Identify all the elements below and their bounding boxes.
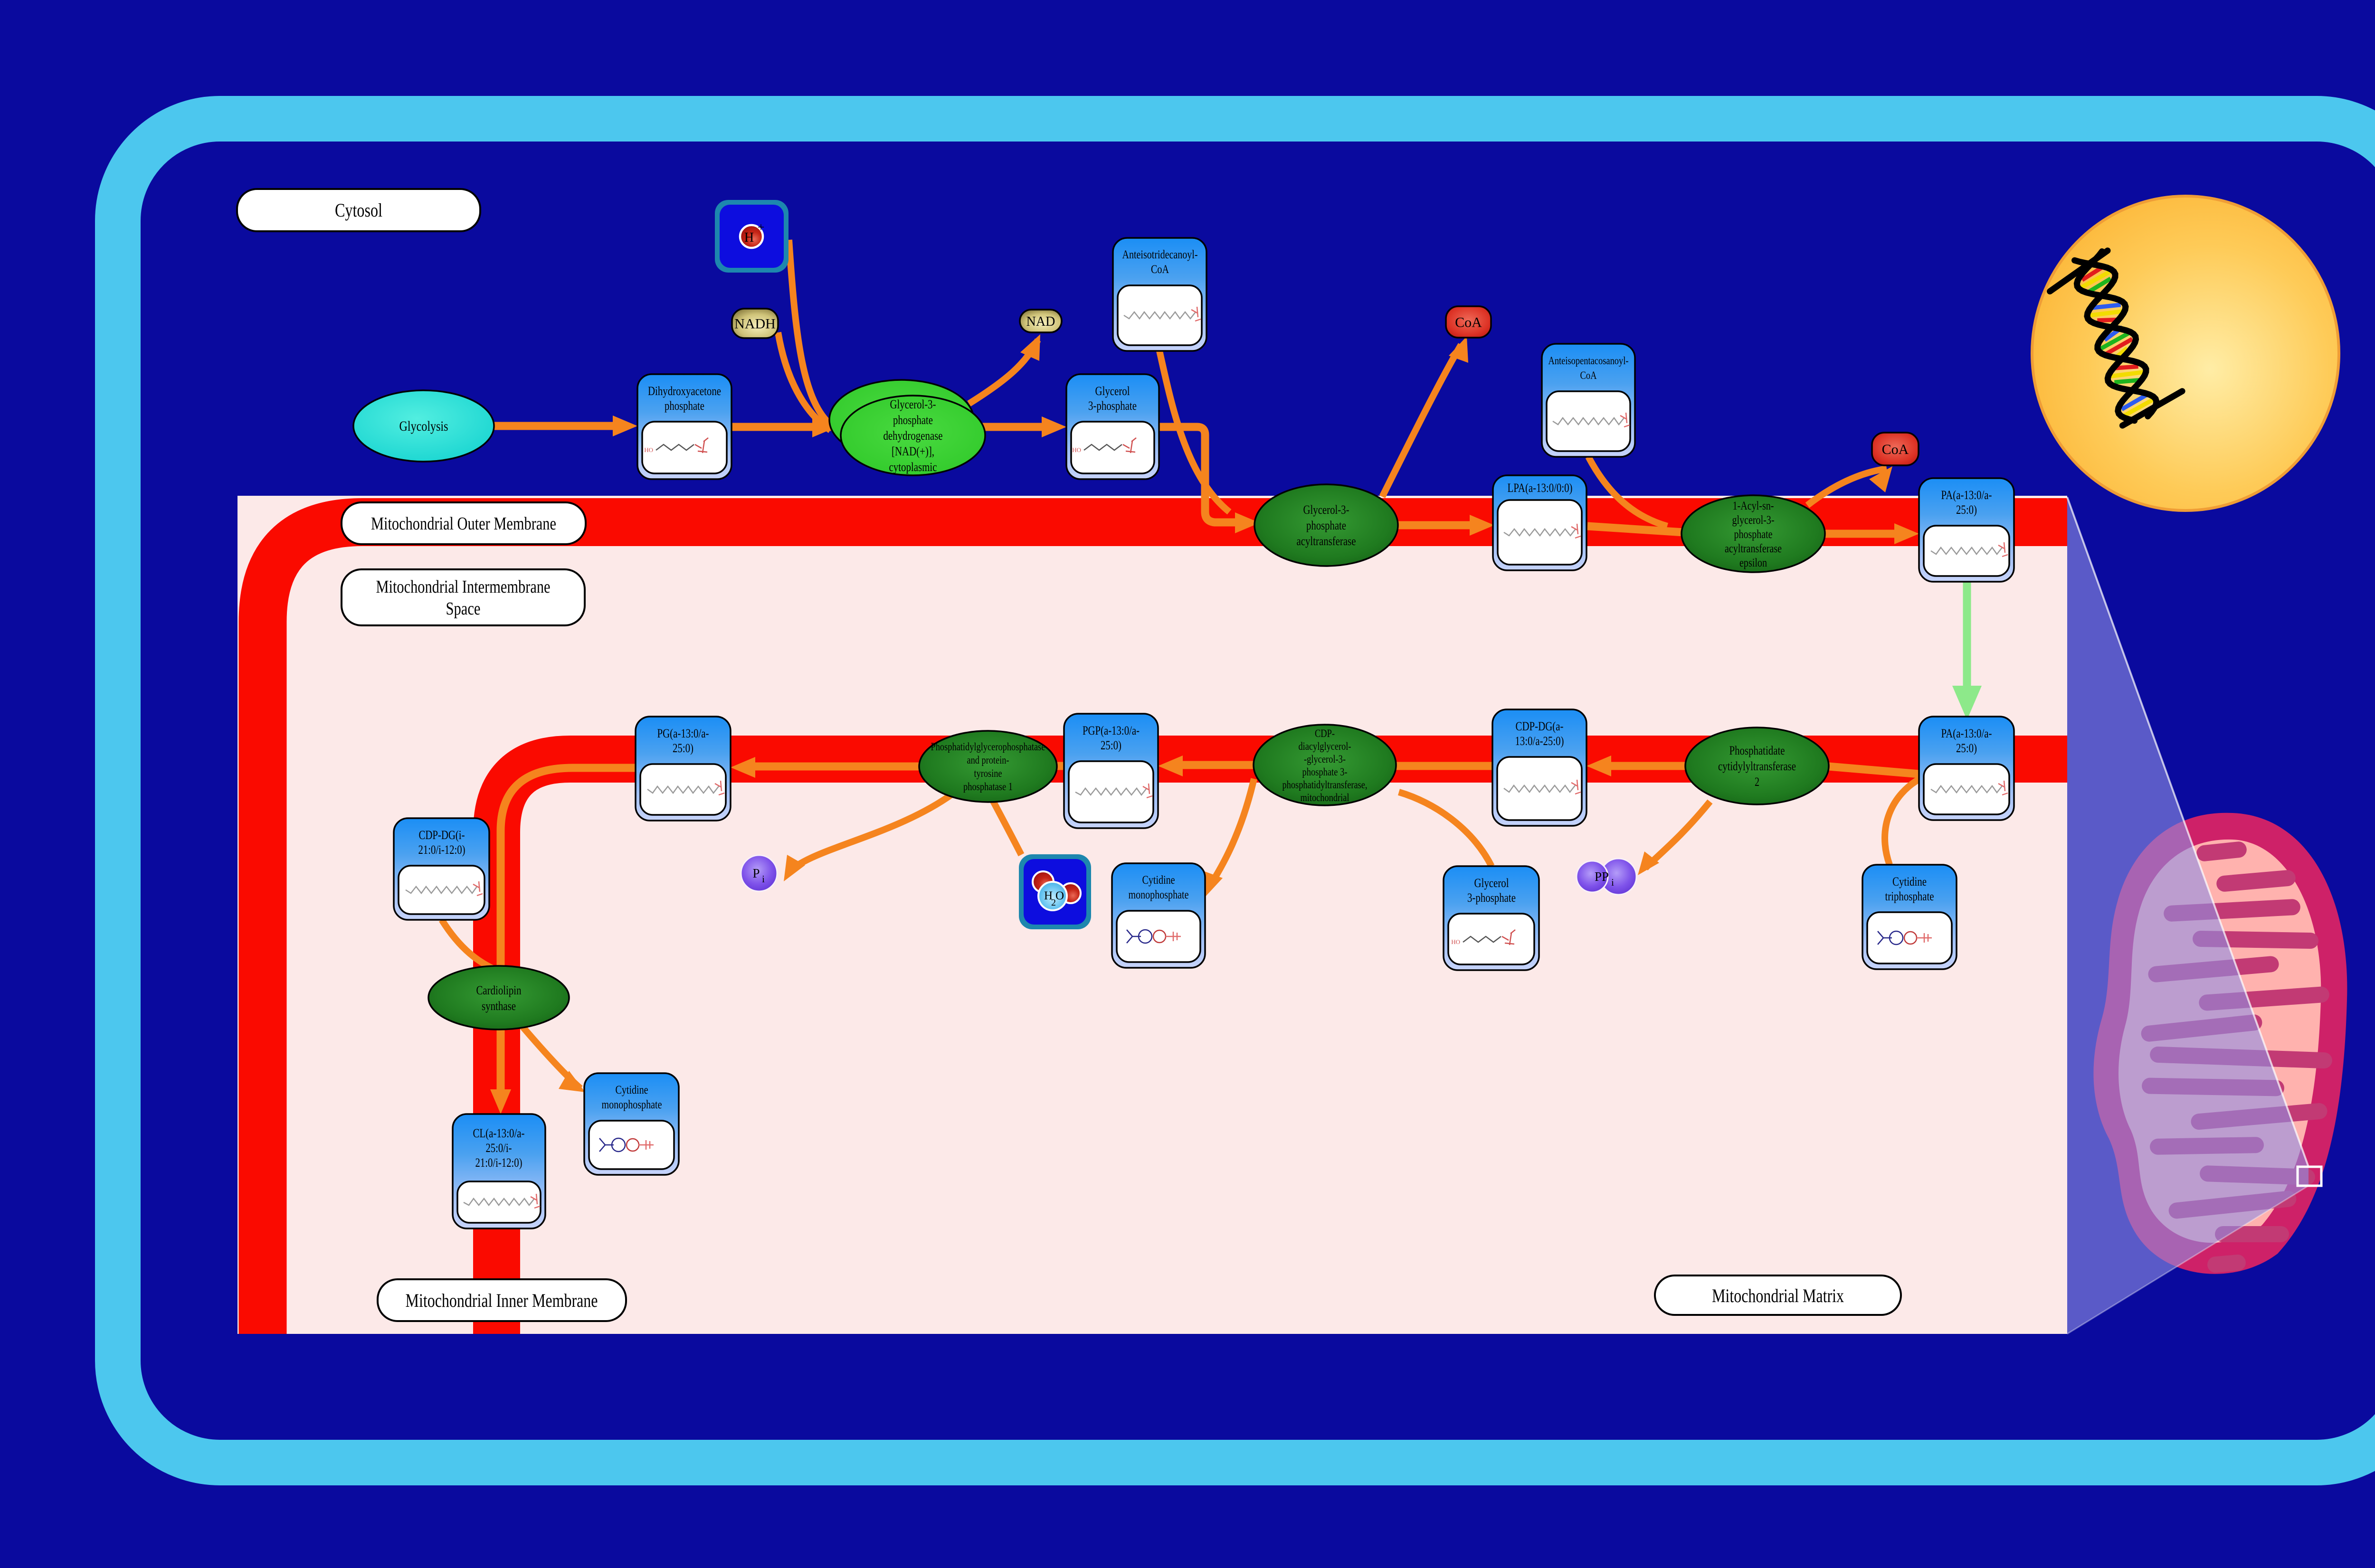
svg-text:phosphate 3-: phosphate 3- bbox=[1302, 766, 1348, 778]
svg-text:HO: HO bbox=[644, 446, 653, 453]
svg-text:25:0): 25:0) bbox=[1956, 741, 1977, 755]
svg-text:epsilon: epsilon bbox=[1739, 557, 1767, 569]
svg-text:Cytosol: Cytosol bbox=[335, 199, 382, 221]
svg-text:Dihydroxyacetone: Dihydroxyacetone bbox=[648, 384, 721, 398]
svg-text:phosphate: phosphate bbox=[665, 399, 704, 413]
svg-text:25:0/i-: 25:0/i- bbox=[486, 1141, 512, 1155]
svg-text:phosphate: phosphate bbox=[1306, 519, 1346, 532]
svg-text:Mitochondrial Outer Membrane: Mitochondrial Outer Membrane bbox=[371, 514, 556, 534]
svg-text:25:0): 25:0) bbox=[1101, 738, 1121, 752]
svg-text:+: + bbox=[758, 220, 765, 234]
svg-text:CL(a-13:0/a-: CL(a-13:0/a- bbox=[473, 1126, 525, 1140]
svg-text:dehydrogenase: dehydrogenase bbox=[883, 429, 943, 443]
svg-text:Cytidine: Cytidine bbox=[1892, 875, 1927, 888]
svg-text:2: 2 bbox=[1755, 775, 1759, 789]
svg-text:PP: PP bbox=[1595, 869, 1609, 884]
svg-text:O: O bbox=[1055, 889, 1064, 902]
svg-text:CoA: CoA bbox=[1580, 369, 1597, 381]
svg-text:HO: HO bbox=[1072, 446, 1081, 453]
svg-text:25:0): 25:0) bbox=[1956, 503, 1977, 517]
svg-text:acyltransferase: acyltransferase bbox=[1297, 534, 1356, 548]
svg-text:25:0): 25:0) bbox=[673, 741, 693, 755]
svg-text:3-phosphate: 3-phosphate bbox=[1467, 891, 1516, 905]
svg-text:and protein-: and protein- bbox=[967, 754, 1009, 766]
svg-text:13:0/a-25:0): 13:0/a-25:0) bbox=[1515, 734, 1564, 748]
svg-text:PG(a-13:0/a-: PG(a-13:0/a- bbox=[657, 727, 709, 740]
svg-text:21:0/i-12:0): 21:0/i-12:0) bbox=[475, 1156, 522, 1170]
svg-text:phosphatidyltransferase,: phosphatidyltransferase, bbox=[1282, 779, 1368, 791]
svg-text:P: P bbox=[752, 866, 760, 880]
svg-text:HO: HO bbox=[1451, 938, 1460, 945]
svg-text:Mitochondrial Matrix: Mitochondrial Matrix bbox=[1712, 1285, 1844, 1306]
svg-text:LPA(a-13:0/0:0): LPA(a-13:0/0:0) bbox=[1508, 481, 1573, 495]
svg-text:CDP-DG(i-: CDP-DG(i- bbox=[419, 828, 465, 842]
svg-text:Anteisotridecanoyl-: Anteisotridecanoyl- bbox=[1122, 248, 1198, 261]
svg-text:i: i bbox=[762, 873, 765, 885]
svg-text:acyltransferase: acyltransferase bbox=[1725, 542, 1782, 555]
svg-text:PA(a-13:0/a-: PA(a-13:0/a- bbox=[1941, 488, 1992, 502]
svg-text:mitochondrial: mitochondrial bbox=[1301, 792, 1349, 803]
svg-text:NADH: NADH bbox=[734, 316, 776, 332]
svg-text:Cytidine: Cytidine bbox=[616, 1084, 648, 1096]
svg-text:CDP-: CDP- bbox=[1315, 727, 1335, 739]
svg-text:3-phosphate: 3-phosphate bbox=[1088, 399, 1137, 413]
svg-text:-glycerol-3-: -glycerol-3- bbox=[1304, 753, 1346, 765]
svg-text:Phosphatidylglycerophosphatase: Phosphatidylglycerophosphatase bbox=[931, 741, 1045, 753]
svg-text:triphosphate: triphosphate bbox=[1885, 889, 1934, 903]
svg-text:CoA: CoA bbox=[1882, 442, 1909, 457]
svg-text:Cytidine: Cytidine bbox=[1142, 874, 1175, 887]
svg-text:Glycerol-3-: Glycerol-3- bbox=[1303, 503, 1349, 517]
svg-text:monophosphate: monophosphate bbox=[1129, 888, 1189, 901]
svg-text:Cardiolipin: Cardiolipin bbox=[476, 983, 522, 997]
svg-text:PGP(a-13:0/a-: PGP(a-13:0/a- bbox=[1083, 724, 1140, 737]
svg-text:21:0/i-12:0): 21:0/i-12:0) bbox=[418, 843, 465, 857]
svg-text:glycerol-3-: glycerol-3- bbox=[1732, 514, 1775, 527]
svg-text:Glycolysis: Glycolysis bbox=[399, 418, 448, 434]
svg-text:diacylglycerol-: diacylglycerol- bbox=[1299, 740, 1351, 752]
svg-text:phosphate: phosphate bbox=[1734, 528, 1773, 541]
svg-text:[NAD(+)],: [NAD(+)], bbox=[892, 444, 934, 458]
svg-text:Space: Space bbox=[446, 599, 481, 619]
svg-text:Glycerol: Glycerol bbox=[1095, 384, 1130, 398]
svg-text:Mitochondrial Inner Membrane: Mitochondrial Inner Membrane bbox=[406, 1290, 598, 1311]
svg-text:cytoplasmic: cytoplasmic bbox=[889, 460, 937, 474]
svg-text:H: H bbox=[744, 230, 754, 245]
svg-text:PA(a-13:0/a-: PA(a-13:0/a- bbox=[1941, 727, 1992, 740]
svg-text:NAD: NAD bbox=[1026, 314, 1055, 329]
svg-text:CoA: CoA bbox=[1151, 263, 1169, 276]
svg-text:Phosphatidate: Phosphatidate bbox=[1729, 744, 1785, 757]
svg-text:cytidylyltransferase: cytidylyltransferase bbox=[1718, 759, 1796, 773]
svg-text:Anteisopentacosanoyl-: Anteisopentacosanoyl- bbox=[1548, 355, 1629, 367]
svg-text:phosphatase 1: phosphatase 1 bbox=[963, 781, 1013, 793]
svg-text:tyrosine: tyrosine bbox=[974, 767, 1002, 779]
svg-text:Glycerol-3-: Glycerol-3- bbox=[890, 397, 936, 411]
svg-text:Mitochondrial Intermembrane: Mitochondrial Intermembrane bbox=[376, 577, 551, 597]
svg-text:i: i bbox=[1611, 877, 1614, 888]
svg-text:CDP-DG(a-: CDP-DG(a- bbox=[1516, 719, 1564, 733]
svg-text:phosphate: phosphate bbox=[893, 413, 933, 427]
svg-text:1-Acyl-sn-: 1-Acyl-sn- bbox=[1733, 500, 1774, 512]
svg-text:Glycerol: Glycerol bbox=[1474, 876, 1509, 890]
svg-text:synthase: synthase bbox=[482, 999, 516, 1013]
svg-text:monophosphate: monophosphate bbox=[602, 1098, 662, 1111]
svg-text:CoA: CoA bbox=[1455, 315, 1482, 331]
